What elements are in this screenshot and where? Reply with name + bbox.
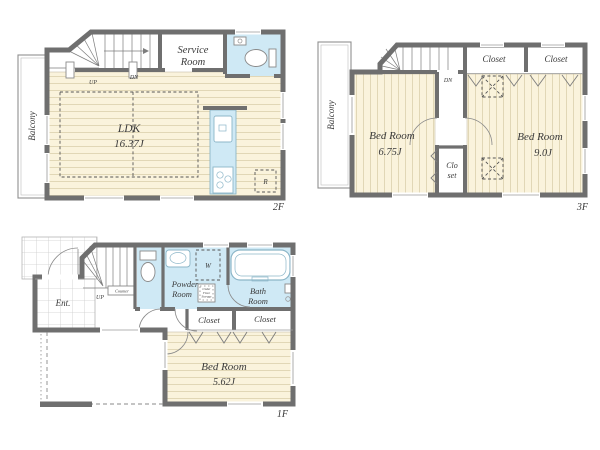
bedroom-562-size: 5.62J [213, 377, 236, 388]
under-floor-storage-label: Storage [202, 295, 213, 299]
counter-label: Counter [115, 289, 129, 294]
entrance-porch-tiles [22, 237, 97, 279]
closet-mid-label: set [448, 171, 458, 180]
stairs-dn-label-2f: DN [129, 75, 139, 81]
ldk-label: LDK [117, 123, 142, 135]
stair-door-jamb [66, 62, 74, 78]
closet-right-label-1f: Closet [254, 314, 276, 324]
bath-room-label: Room [247, 296, 268, 306]
powder-room-label: Powder [171, 279, 199, 289]
service-room-label: Room [180, 57, 206, 68]
balcony-3f-label: Balcony [326, 100, 336, 130]
open-space-boundary [40, 332, 165, 407]
balcony-2f-label: Balcony [27, 111, 37, 141]
service-room-label: Service [178, 45, 209, 56]
garden-wall [40, 402, 92, 408]
floor-plan-page: Balcony [0, 0, 600, 450]
stairs-up-label-2f: UP [89, 80, 97, 86]
bedroom-90-size: 9.0J [534, 148, 553, 159]
closet-mid-label: Clo [446, 161, 458, 170]
floor-plan-drawing: Balcony [0, 0, 600, 450]
powder-room-label: Room [171, 289, 192, 299]
bedroom-675-size: 6.75J [378, 147, 402, 158]
under-floor-storage: Under Floor Storage [198, 284, 215, 302]
closet-left-label-1f: Closet [198, 315, 220, 325]
closet-right-label-3f: Closet [544, 54, 568, 64]
washbasin-icon [166, 250, 190, 267]
stairs-dn-label-3f: DN [443, 78, 453, 84]
closet-left-label-3f: Closet [482, 54, 506, 64]
ldk-size-label: 16.37J [114, 138, 145, 150]
bedroom-562-label: Bed Room [201, 361, 247, 373]
floor-plan-2f: Balcony [18, 30, 286, 214]
bedroom-90-label: Bed Room [517, 131, 563, 143]
sink-icon [214, 116, 232, 142]
floor-label-1f: 1F [277, 409, 289, 420]
floor-label-3f: 3F [576, 202, 589, 213]
bath-room-label: Bath [250, 286, 266, 296]
floor-label-2f: 2F [273, 202, 285, 213]
entrance-label: Ent. [55, 298, 71, 308]
fridge-label: R [262, 178, 268, 186]
toilet-icon-1f [140, 251, 156, 282]
stairs-arrow [143, 48, 149, 54]
bedroom-675-label: Bed Room [369, 130, 415, 142]
stove-icon [213, 167, 233, 193]
floor-plan-1f: W Under Floor Storage [22, 237, 296, 420]
stairs-up-label-1f: UP [96, 295, 104, 301]
floor-plan-3f: Balcony [318, 42, 589, 213]
kitchen-counter [210, 110, 236, 194]
